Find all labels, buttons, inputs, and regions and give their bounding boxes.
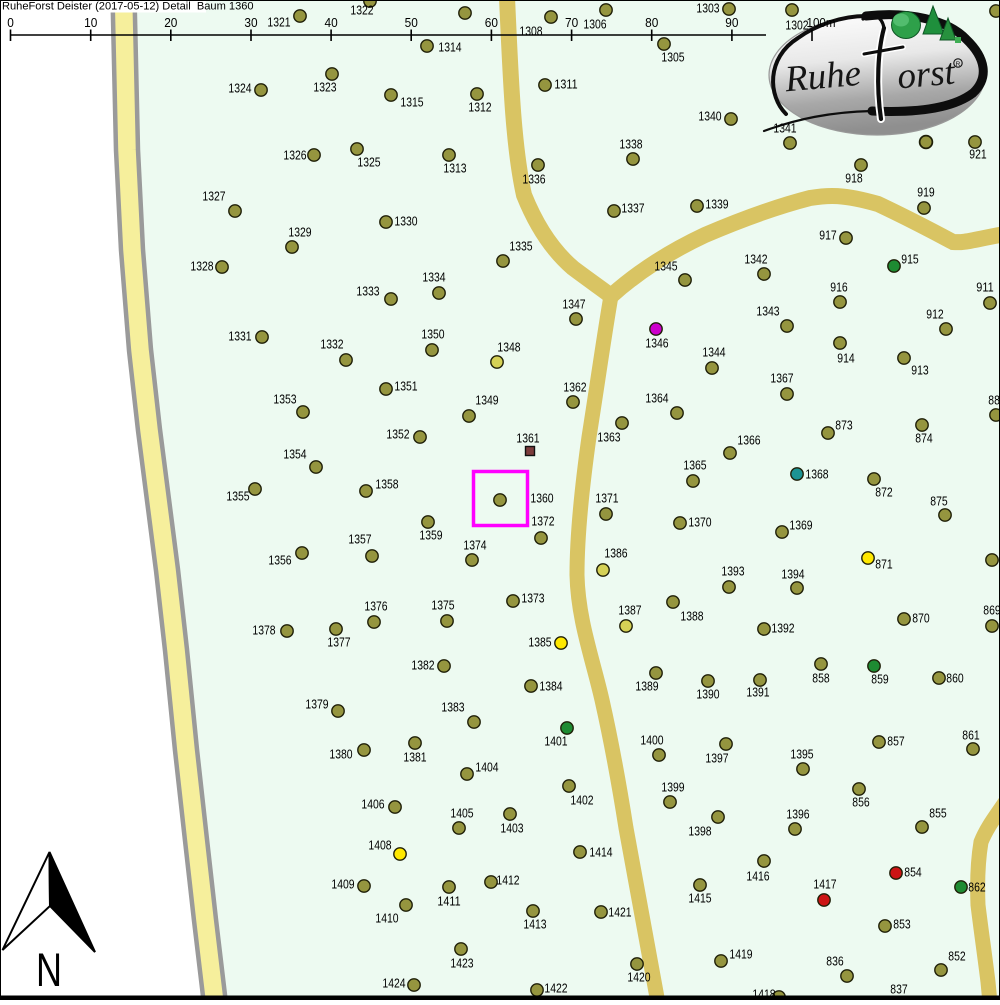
- svg-text:855: 855: [929, 806, 946, 821]
- svg-text:1313: 1313: [443, 161, 466, 176]
- svg-text:1421: 1421: [608, 905, 631, 920]
- svg-text:1405: 1405: [450, 806, 473, 821]
- svg-text:1367: 1367: [770, 371, 793, 386]
- svg-text:856: 856: [852, 795, 869, 810]
- svg-text:1385: 1385: [528, 635, 551, 650]
- svg-text:1344: 1344: [702, 345, 725, 360]
- svg-text:1345: 1345: [654, 259, 677, 274]
- svg-text:1392: 1392: [771, 621, 794, 636]
- svg-text:1403: 1403: [500, 821, 523, 836]
- svg-text:1354: 1354: [283, 447, 306, 462]
- svg-text:1380: 1380: [329, 747, 352, 762]
- svg-text:1314: 1314: [438, 40, 461, 55]
- svg-text:1412: 1412: [496, 873, 519, 888]
- svg-text:858: 858: [812, 671, 829, 686]
- svg-text:1375: 1375: [431, 598, 454, 613]
- svg-text:1369: 1369: [789, 518, 812, 533]
- svg-text:1330: 1330: [394, 214, 417, 229]
- svg-text:1302: 1302: [785, 18, 808, 33]
- svg-text:1365: 1365: [683, 458, 706, 473]
- svg-text:1373: 1373: [521, 591, 544, 606]
- svg-text:1343: 1343: [756, 304, 779, 319]
- svg-text:918: 918: [845, 171, 862, 186]
- svg-text:1409: 1409: [331, 877, 354, 892]
- svg-text:1361: 1361: [516, 431, 539, 446]
- svg-text:1359: 1359: [419, 528, 442, 543]
- svg-text:1337: 1337: [621, 201, 644, 216]
- svg-text:1355: 1355: [226, 489, 249, 504]
- svg-text:1414: 1414: [589, 845, 612, 860]
- svg-text:862: 862: [968, 880, 985, 895]
- svg-text:50: 50: [405, 15, 418, 30]
- svg-text:1362: 1362: [563, 380, 586, 395]
- svg-text:1308: 1308: [519, 24, 542, 39]
- svg-text:70: 70: [565, 15, 578, 30]
- svg-text:1388: 1388: [680, 609, 703, 624]
- svg-text:859: 859: [871, 672, 888, 687]
- svg-text:1305: 1305: [661, 50, 684, 65]
- svg-text:1358: 1358: [375, 477, 398, 492]
- svg-text:1357: 1357: [348, 532, 371, 547]
- svg-text:1356: 1356: [268, 553, 291, 568]
- svg-text:1350: 1350: [421, 327, 444, 342]
- svg-text:1315: 1315: [400, 95, 423, 110]
- svg-text:1393: 1393: [721, 564, 744, 579]
- svg-text:1338: 1338: [619, 137, 642, 152]
- svg-text:N: N: [36, 943, 62, 996]
- svg-text:1406: 1406: [361, 797, 384, 812]
- svg-text:916: 916: [830, 280, 847, 295]
- svg-text:1326: 1326: [283, 148, 306, 163]
- svg-text:1322: 1322: [350, 3, 373, 18]
- svg-text:10: 10: [84, 15, 97, 30]
- svg-text:1323: 1323: [313, 80, 336, 95]
- svg-text:1329: 1329: [288, 225, 311, 240]
- svg-text:912: 912: [926, 307, 943, 322]
- svg-text:1348: 1348: [497, 340, 520, 355]
- svg-text:874: 874: [915, 431, 932, 446]
- svg-text:1391: 1391: [746, 685, 769, 700]
- svg-text:1384: 1384: [539, 679, 562, 694]
- svg-text:1402: 1402: [570, 793, 593, 808]
- svg-text:873: 873: [835, 418, 852, 433]
- svg-text:R: R: [956, 61, 961, 68]
- svg-text:90: 90: [725, 15, 738, 30]
- svg-text:913: 913: [911, 363, 928, 378]
- svg-text:1327: 1327: [202, 189, 225, 204]
- svg-text:1342: 1342: [744, 252, 767, 267]
- svg-text:1332: 1332: [320, 337, 343, 352]
- svg-text:1349: 1349: [475, 393, 498, 408]
- svg-text:30: 30: [244, 15, 257, 30]
- svg-text:1311: 1311: [554, 77, 577, 92]
- svg-text:1347: 1347: [562, 297, 585, 312]
- svg-text:1379: 1379: [305, 697, 328, 712]
- svg-text:854: 854: [904, 865, 921, 880]
- svg-text:1340: 1340: [698, 109, 721, 124]
- svg-text:0: 0: [7, 15, 14, 30]
- svg-text:1386: 1386: [604, 546, 627, 561]
- svg-text:1395: 1395: [790, 747, 813, 762]
- svg-text:1333: 1333: [356, 284, 379, 299]
- svg-text:1422: 1422: [544, 981, 567, 996]
- svg-text:1360: 1360: [530, 491, 553, 506]
- svg-text:1321: 1321: [267, 15, 290, 30]
- svg-text:837: 837: [890, 982, 907, 997]
- svg-text:911: 911: [976, 280, 993, 295]
- svg-text:1376: 1376: [364, 599, 387, 614]
- svg-text:1387: 1387: [618, 603, 641, 618]
- svg-text:1423: 1423: [450, 956, 473, 971]
- svg-text:870: 870: [912, 611, 929, 626]
- svg-text:1399: 1399: [661, 780, 684, 795]
- svg-text:857: 857: [887, 734, 904, 749]
- svg-text:917: 917: [819, 228, 836, 243]
- svg-text:1368: 1368: [805, 467, 828, 482]
- svg-text:1328: 1328: [190, 259, 213, 274]
- svg-text:1417: 1417: [813, 877, 836, 892]
- svg-text:1312: 1312: [468, 100, 491, 115]
- svg-text:921: 921: [969, 147, 986, 162]
- svg-text:1378: 1378: [252, 623, 275, 638]
- svg-text:1420: 1420: [627, 970, 650, 985]
- svg-text:1353: 1353: [273, 392, 296, 407]
- svg-text:1339: 1339: [705, 197, 728, 212]
- svg-text:80: 80: [645, 15, 658, 30]
- svg-text:884: 884: [988, 393, 1000, 408]
- svg-text:914: 914: [837, 351, 854, 366]
- svg-text:1341: 1341: [773, 121, 796, 136]
- svg-text:20: 20: [164, 15, 177, 30]
- svg-text:860: 860: [946, 671, 963, 686]
- svg-text:60: 60: [485, 15, 498, 30]
- svg-text:861: 861: [962, 728, 979, 743]
- svg-text:40: 40: [325, 15, 338, 30]
- svg-text:1331: 1331: [228, 329, 251, 344]
- svg-text:871: 871: [875, 557, 892, 572]
- svg-text:1370: 1370: [688, 515, 711, 530]
- svg-text:1303: 1303: [696, 1, 719, 16]
- svg-text:1383: 1383: [441, 700, 464, 715]
- svg-text:1377: 1377: [327, 635, 350, 650]
- svg-text:872: 872: [875, 485, 892, 500]
- svg-text:1396: 1396: [786, 807, 809, 822]
- svg-text:1419: 1419: [729, 947, 752, 962]
- svg-text:1382: 1382: [411, 658, 434, 673]
- svg-text:1336: 1336: [522, 172, 545, 187]
- svg-text:836: 836: [826, 954, 843, 969]
- svg-text:1372: 1372: [531, 514, 554, 529]
- svg-text:853: 853: [893, 917, 910, 932]
- svg-text:1390: 1390: [696, 687, 719, 702]
- svg-text:1415: 1415: [688, 891, 711, 906]
- svg-text:1324: 1324: [228, 81, 251, 96]
- svg-text:1325: 1325: [357, 155, 380, 170]
- svg-text:1398: 1398: [688, 824, 711, 839]
- svg-text:919: 919: [917, 185, 934, 200]
- svg-text:1404: 1404: [475, 760, 498, 775]
- svg-text:1374: 1374: [463, 538, 486, 553]
- svg-text:RuheForst Deister (2017-05-12): RuheForst Deister (2017-05-12) Detail Ba…: [2, 1, 254, 13]
- svg-text:1364: 1364: [645, 391, 668, 406]
- svg-text:1401: 1401: [544, 734, 567, 749]
- svg-text:1363: 1363: [597, 430, 620, 445]
- svg-text:1411: 1411: [437, 894, 460, 909]
- svg-text:Ruhe: Ruhe: [782, 53, 862, 101]
- svg-text:915: 915: [901, 252, 918, 267]
- svg-text:100m: 100m: [807, 15, 836, 30]
- svg-text:1389: 1389: [635, 679, 658, 694]
- svg-text:1371: 1371: [595, 491, 618, 506]
- svg-text:1413: 1413: [523, 917, 546, 932]
- svg-text:1408: 1408: [368, 838, 391, 853]
- svg-text:orst: orst: [896, 51, 959, 97]
- svg-text:1400: 1400: [640, 733, 663, 748]
- svg-text:1397: 1397: [705, 751, 728, 766]
- svg-text:1352: 1352: [386, 427, 409, 442]
- svg-text:1351: 1351: [394, 379, 417, 394]
- svg-text:875: 875: [930, 494, 947, 509]
- svg-text:1306: 1306: [583, 17, 606, 32]
- svg-text:1335: 1335: [509, 239, 532, 254]
- svg-text:1424: 1424: [382, 976, 405, 991]
- svg-text:869: 869: [983, 603, 1000, 618]
- svg-text:1381: 1381: [403, 750, 426, 765]
- svg-text:1410: 1410: [375, 911, 398, 926]
- svg-text:1346: 1346: [645, 336, 668, 351]
- svg-text:1416: 1416: [746, 869, 769, 884]
- svg-text:852: 852: [948, 949, 965, 964]
- svg-text:1334: 1334: [422, 270, 445, 285]
- svg-text:1394: 1394: [781, 567, 804, 582]
- svg-text:1366: 1366: [737, 433, 760, 448]
